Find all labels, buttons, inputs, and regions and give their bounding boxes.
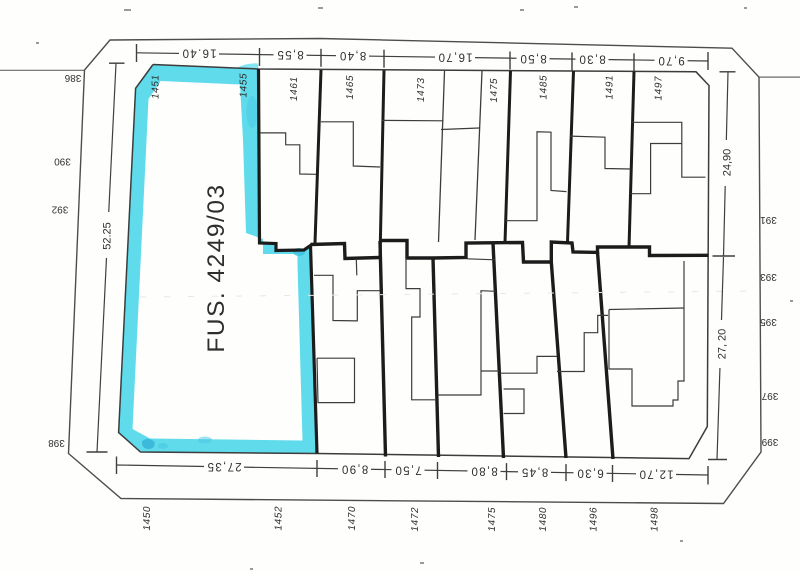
svg-text:16,70: 16,70 xyxy=(437,51,472,63)
svg-text:1496: 1496 xyxy=(588,506,599,533)
svg-text:392: 392 xyxy=(51,203,68,214)
svg-text:1475: 1475 xyxy=(489,77,500,104)
svg-text:1475: 1475 xyxy=(487,506,498,533)
svg-text:16.40: 16.40 xyxy=(181,47,216,59)
svg-text:1451: 1451 xyxy=(150,73,161,100)
svg-text:1485: 1485 xyxy=(538,74,549,101)
svg-text:7,50: 7,50 xyxy=(394,463,422,475)
svg-text:1450: 1450 xyxy=(142,505,153,532)
svg-text:386: 386 xyxy=(64,72,81,83)
svg-text:1473: 1473 xyxy=(416,76,427,103)
svg-text:1465: 1465 xyxy=(345,74,356,101)
svg-text:8,30: 8,30 xyxy=(578,53,606,65)
svg-text:8,90: 8,90 xyxy=(341,462,369,474)
svg-text:399: 399 xyxy=(761,436,778,447)
svg-text:1452: 1452 xyxy=(273,505,284,532)
svg-text:52.25: 52.25 xyxy=(101,222,113,250)
svg-text:12,70: 12,70 xyxy=(638,468,673,480)
svg-text:8,40: 8,40 xyxy=(339,49,367,61)
svg-text:8,80: 8,80 xyxy=(470,465,498,477)
svg-text:27,35: 27,35 xyxy=(206,460,241,472)
svg-text:397: 397 xyxy=(761,390,778,401)
svg-text:398: 398 xyxy=(48,437,65,448)
svg-text:1497: 1497 xyxy=(653,75,664,102)
svg-text:FUS. 4249/03: FUS. 4249/03 xyxy=(203,183,230,352)
svg-text:1498: 1498 xyxy=(649,506,660,533)
svg-text:390: 390 xyxy=(54,155,71,166)
svg-text:391: 391 xyxy=(760,214,777,225)
svg-text:27, 20: 27, 20 xyxy=(716,329,728,360)
svg-text:1472: 1472 xyxy=(410,506,421,533)
svg-text:1491: 1491 xyxy=(604,74,615,101)
svg-text:395: 395 xyxy=(760,316,777,327)
svg-text:24,90: 24,90 xyxy=(721,149,733,177)
svg-text:1455: 1455 xyxy=(238,72,249,99)
svg-text:9,70: 9,70 xyxy=(657,54,685,66)
svg-text:8,45: 8,45 xyxy=(521,466,549,478)
svg-text:393: 393 xyxy=(760,271,777,282)
svg-text:8,55: 8,55 xyxy=(276,48,304,60)
svg-text:6,30: 6,30 xyxy=(576,466,604,478)
svg-text:8,50: 8,50 xyxy=(519,52,547,64)
svg-text:1461: 1461 xyxy=(289,75,300,102)
svg-text:1480: 1480 xyxy=(538,506,549,533)
svg-text:1470: 1470 xyxy=(347,505,358,532)
